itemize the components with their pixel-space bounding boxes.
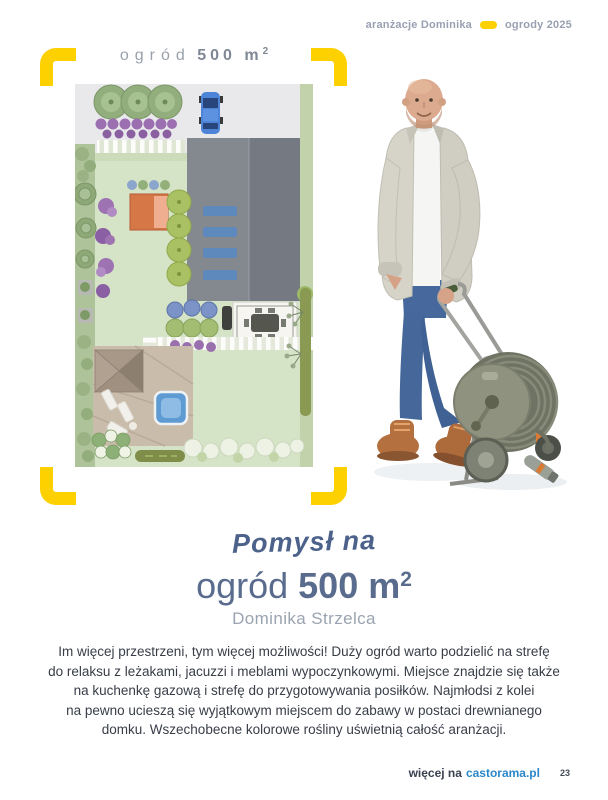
idea-title: ogród 500 m2 <box>0 560 608 606</box>
garden-plan-illustration <box>75 84 313 467</box>
idea-section: Pomysł na ogród 500 m2 Dominika Strzelca… <box>0 527 608 740</box>
header-series-label: aranżacje Dominika <box>366 19 472 31</box>
model-photo-svg <box>340 72 600 502</box>
plan-title: ogród 500 m2 <box>75 46 313 65</box>
frame-corner-bottom-left-icon <box>40 467 76 505</box>
separator-pill-icon <box>480 21 497 29</box>
page-header: aranżacje Dominika ogrody 2025 <box>366 19 572 31</box>
footer-prefix: więcej na <box>409 766 462 780</box>
description-paragraph: Im więcej przestrzeni, tym więcej możliw… <box>39 642 569 740</box>
plan-title-word: ogród <box>120 47 191 64</box>
idea-title-sup: 2 <box>400 568 412 591</box>
plan-title-size: 500 m <box>197 47 262 64</box>
plan-title-sup: 2 <box>263 46 269 57</box>
model-photo <box>340 72 600 502</box>
idea-kicker: Pomysł na <box>0 519 608 566</box>
catalog-page: aranżacje Dominika ogrody 2025 ogród 500… <box>0 0 608 800</box>
castorama-link[interactable]: castorama.pl <box>466 766 540 780</box>
header-edition-label: ogrody 2025 <box>505 19 572 31</box>
author-name: Dominika Strzelca <box>0 609 608 629</box>
page-number: 23 <box>560 768 570 778</box>
idea-title-word: ogród <box>196 565 288 606</box>
frame-corner-top-left-icon <box>40 48 76 86</box>
garden-plan-svg <box>75 84 313 467</box>
page-footer: więcej na castorama.pl 23 <box>409 766 570 780</box>
idea-title-size: 500 m <box>298 565 400 606</box>
